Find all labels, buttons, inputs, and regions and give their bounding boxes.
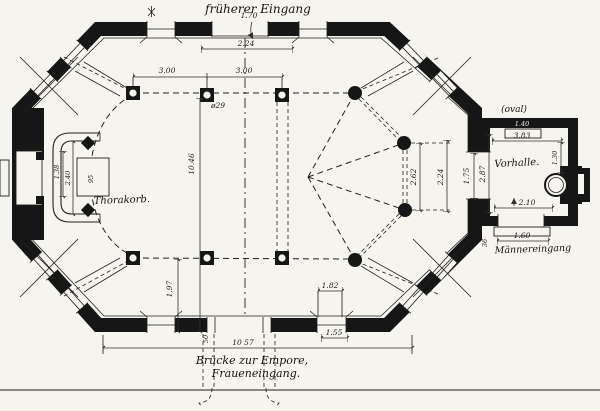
former-entrance-opening xyxy=(212,21,268,37)
columns xyxy=(126,86,412,267)
dim-column-diameter: ø29 xyxy=(210,101,225,110)
dim-bay-right: 3.00 xyxy=(236,66,253,75)
dim-vorhalle-depth: 2.87 xyxy=(478,165,487,183)
annex-mark: 36 xyxy=(481,239,489,247)
label-thorakorb: Thorakorb. xyxy=(94,194,151,207)
label-vorhalle: Vorhalle. xyxy=(494,157,540,170)
round-column xyxy=(398,203,412,217)
dim-fan-spacing: 2.62 xyxy=(409,168,418,186)
dim-bima: 95 xyxy=(87,175,95,183)
men-entrance-opening xyxy=(498,214,544,227)
nw-cross-mark xyxy=(20,57,78,115)
interior-guide-lines xyxy=(64,38,450,316)
label-oval: (oval) xyxy=(501,104,527,115)
dim-fan-wall: 2.24 xyxy=(436,168,445,186)
dimensions: 1.70 2.24 3.00 3.00 ø29 10.46 2.62 2.24 … xyxy=(53,11,561,354)
round-column xyxy=(397,136,411,150)
step-mark: 50 xyxy=(202,335,210,343)
dim-bay-left: 3.00 xyxy=(159,66,176,75)
square-pillar xyxy=(126,251,140,265)
dim-window-outer: 1.55 xyxy=(326,328,343,337)
dim-apse-inner: 1.38 xyxy=(53,165,61,179)
dim-hall-length: 10.46 xyxy=(187,153,196,175)
label-maennereingang: Männereingang xyxy=(493,243,571,257)
survey-mark-icon xyxy=(148,6,155,17)
floor-plan-sheet: 1.70 2.24 3.00 3.00 ø29 10.46 2.62 2.24 … xyxy=(0,0,600,411)
dim-apse-outer: 2.40 xyxy=(64,171,72,186)
label-former-entrance: früherer Eingang xyxy=(204,2,311,16)
dim-top-width: 2.24 xyxy=(237,39,255,48)
dim-step-width: 1.60 xyxy=(514,231,531,240)
dim-total-width: 10 57 xyxy=(232,338,254,347)
bottom-wall-openings xyxy=(140,311,353,333)
ne-cross-mark xyxy=(413,57,471,115)
dim-sw-bay: 1.97 xyxy=(165,280,174,297)
dim-exit-width: 2.10 xyxy=(518,198,536,207)
square-pillar xyxy=(275,251,289,265)
floor-plan-drawing: 1.70 2.24 3.00 3.00 ø29 10.46 2.62 2.24 … xyxy=(0,0,600,411)
dim-door-east: 1.75 xyxy=(462,167,471,184)
square-pillar xyxy=(200,251,214,265)
label-bridge-line1: Brücke zur Empore, xyxy=(195,354,308,367)
vault-fan xyxy=(308,92,450,261)
label-bridge-line2: Fraueneingang. xyxy=(211,367,300,380)
dim-vorhalle-right: 1.30 xyxy=(551,151,559,165)
round-column xyxy=(348,253,362,267)
dim-vorhalle-window: 1.40 xyxy=(515,120,529,128)
dim-window-inner: 1.82 xyxy=(322,281,339,290)
round-column xyxy=(348,86,362,100)
dim-vorhalle-width: 3.83 xyxy=(514,131,531,140)
women-entrance-opening xyxy=(207,317,271,333)
sw-cross-mark xyxy=(20,239,78,297)
se-cross-mark xyxy=(413,239,471,297)
